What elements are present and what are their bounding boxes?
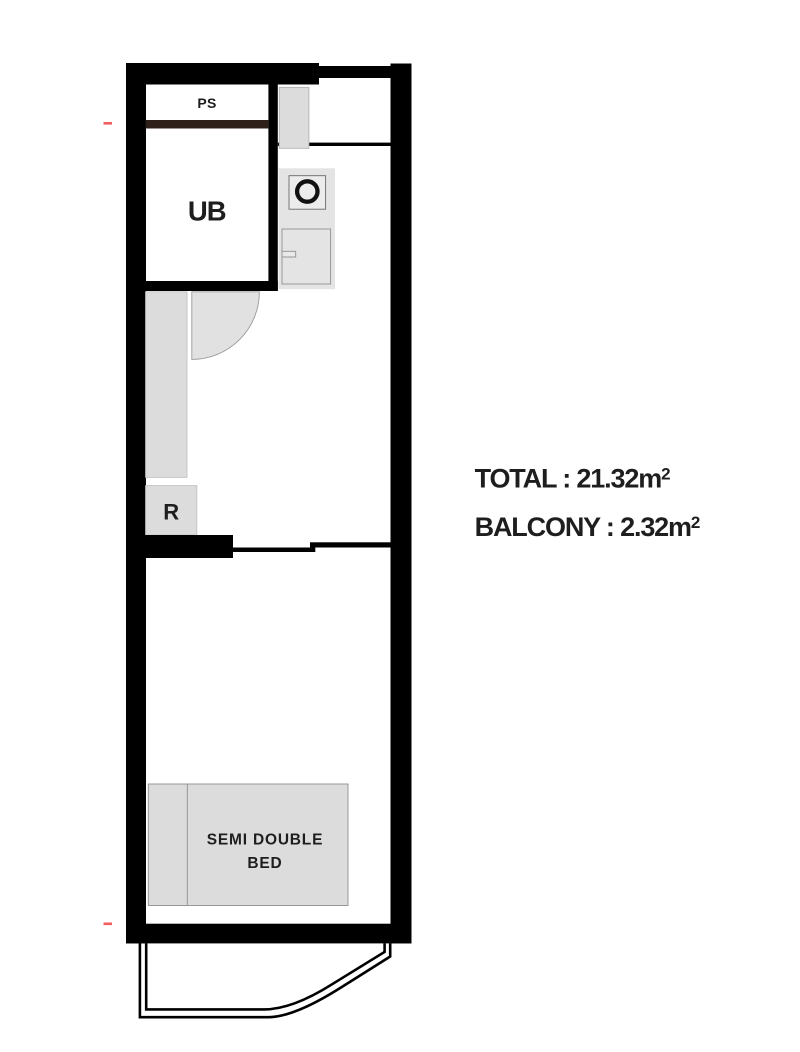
svg-text:TOTAL : 21.32m2: TOTAL : 21.32m2 xyxy=(475,464,670,494)
svg-text:SEMI DOUBLE: SEMI DOUBLE xyxy=(207,832,323,849)
svg-text:UB: UB xyxy=(188,195,226,226)
svg-text:BALCONY : 2.32m2: BALCONY : 2.32m2 xyxy=(475,512,700,542)
svg-text:R: R xyxy=(163,500,179,525)
svg-text:PS: PS xyxy=(197,95,216,111)
svg-text:BED: BED xyxy=(247,855,282,872)
